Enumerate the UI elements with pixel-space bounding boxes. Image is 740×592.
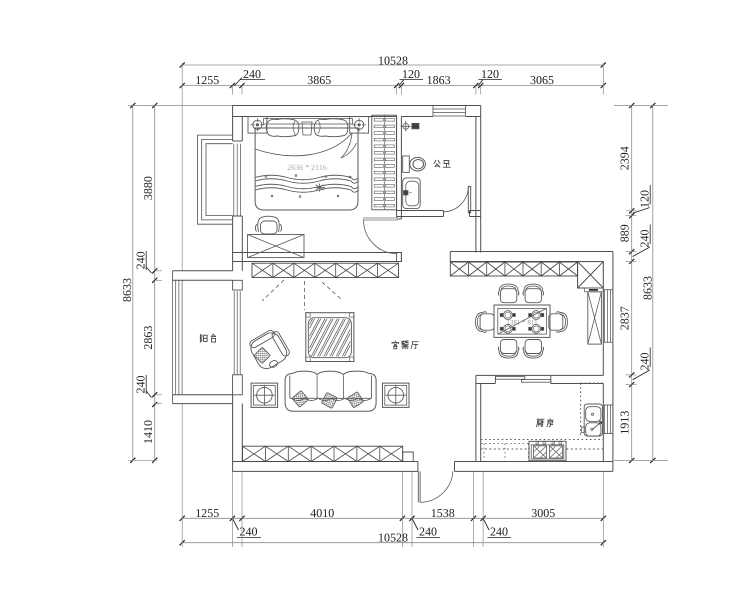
svg-text:4010: 4010	[310, 506, 334, 520]
svg-text:1255: 1255	[195, 506, 219, 520]
svg-text:3005: 3005	[531, 506, 555, 520]
svg-text:1863: 1863	[427, 73, 451, 87]
svg-text:120: 120	[638, 190, 652, 208]
svg-text:240: 240	[243, 67, 261, 81]
svg-text:2636 * 2116: 2636 * 2116	[287, 163, 327, 172]
svg-text:3880: 3880	[141, 176, 155, 200]
svg-text:3865: 3865	[307, 73, 331, 87]
svg-text:120: 120	[402, 67, 420, 81]
svg-text:8633: 8633	[640, 276, 654, 300]
svg-text:2837: 2837	[618, 306, 632, 330]
svg-text:240: 240	[490, 525, 508, 539]
svg-text:240: 240	[134, 251, 148, 269]
svg-text:2863: 2863	[141, 326, 155, 350]
svg-text:240: 240	[419, 525, 437, 539]
svg-text:240: 240	[134, 376, 148, 394]
svg-text:1538: 1538	[431, 506, 455, 520]
svg-text:1255: 1255	[195, 73, 219, 87]
svg-text:240: 240	[638, 230, 652, 248]
svg-text:3065: 3065	[530, 73, 554, 87]
svg-text:120: 120	[481, 67, 499, 81]
svg-text:8633: 8633	[120, 278, 134, 302]
svg-text:240: 240	[638, 353, 652, 371]
svg-text:1410: 1410	[141, 420, 155, 444]
svg-text:1913: 1913	[618, 411, 632, 435]
svg-text:889: 889	[618, 224, 632, 242]
svg-text:10528: 10528	[378, 53, 408, 67]
svg-text:10528: 10528	[378, 531, 408, 545]
svg-text:2394: 2394	[618, 146, 632, 170]
